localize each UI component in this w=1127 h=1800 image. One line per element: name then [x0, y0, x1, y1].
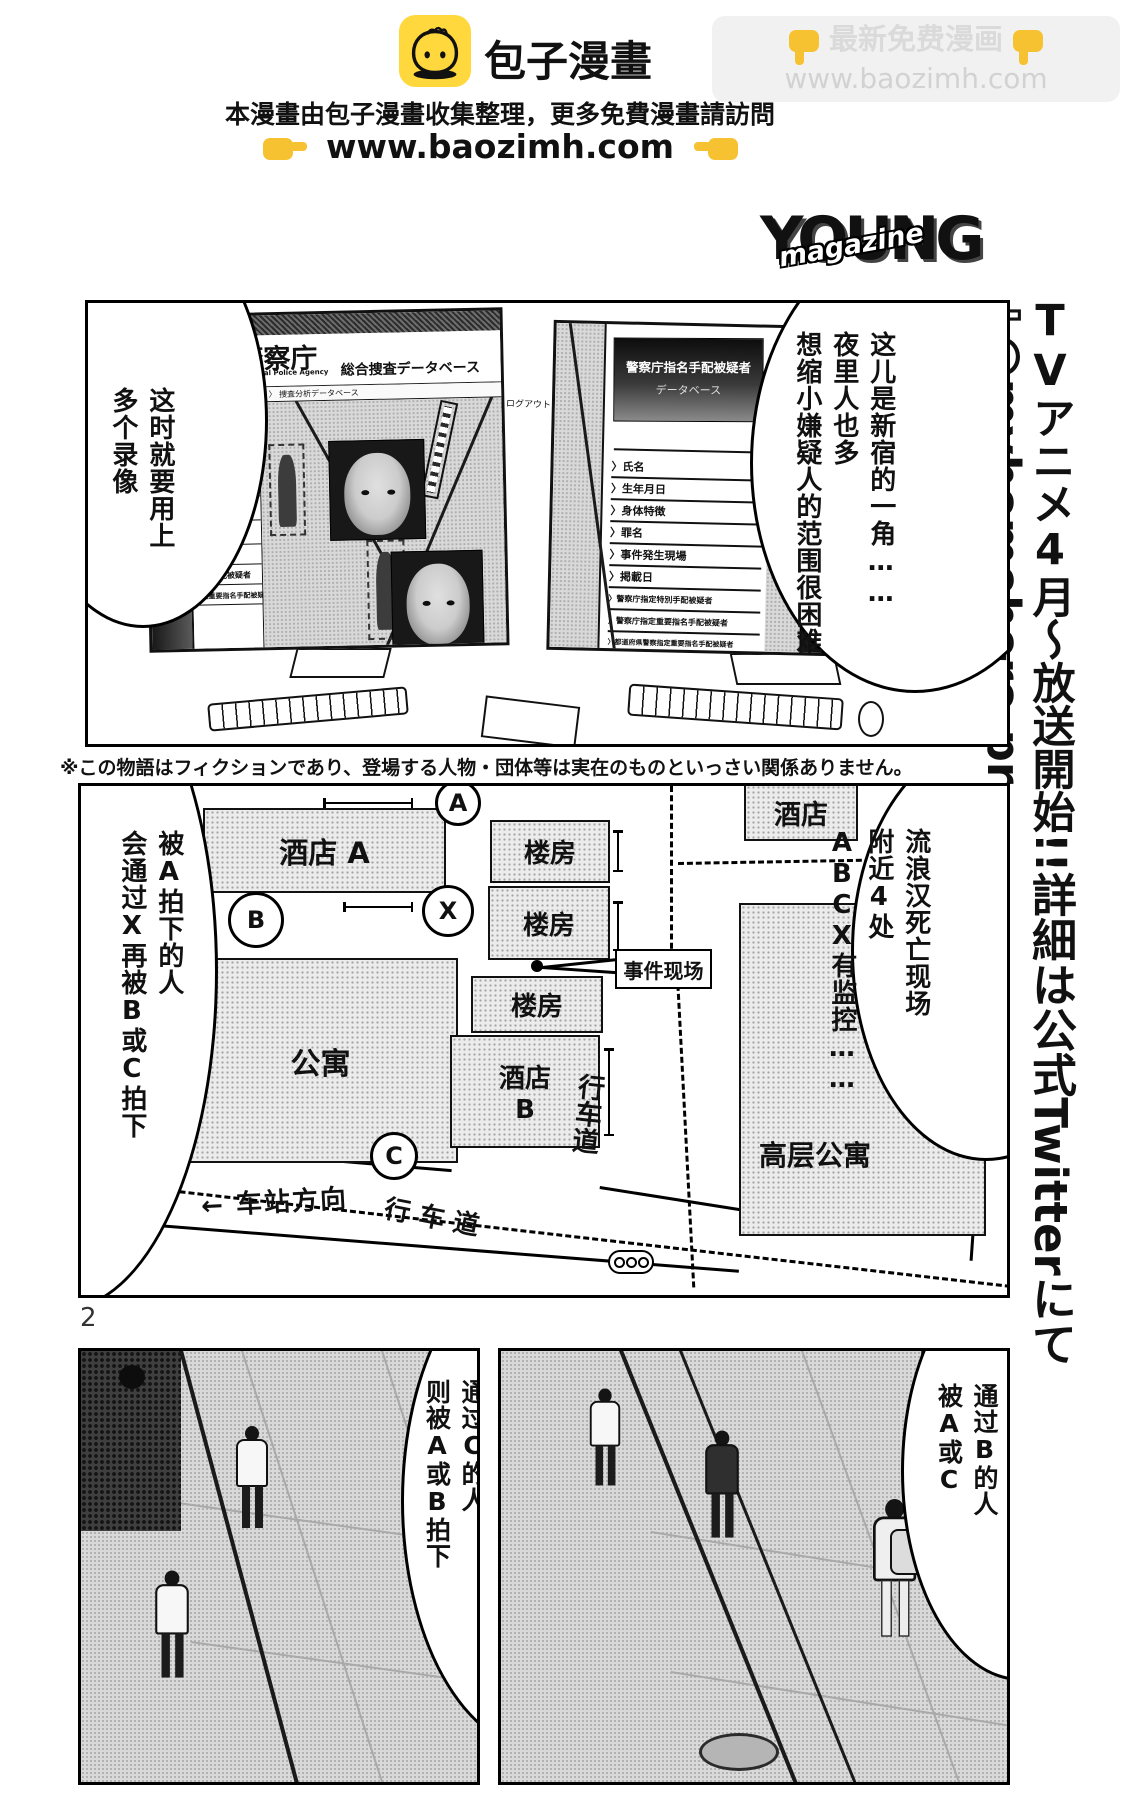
- db-search-field[interactable]: ρ: [614, 428, 760, 453]
- speech-bubble-text: 流浪汉死亡现场 附近4处 ABCX有监控……: [823, 828, 934, 1095]
- measure-tick: [617, 830, 619, 872]
- cctv-still: [259, 397, 509, 653]
- speech-bubble-text: 通过B的人 被A或C: [931, 1383, 1002, 1517]
- speech-bubble-text: 这儿是新宿的一角…… 夜里人也多 想缩小嫌疑人的范围很困难: [788, 331, 899, 655]
- map-building-apartment: 公寓: [183, 958, 458, 1163]
- url-text[interactable]: www.baozimh.com: [326, 127, 674, 166]
- suspect-selection-box: [268, 443, 306, 536]
- panel-street-right: 通过B的人 被A或C: [498, 1348, 1010, 1785]
- manga-page: { "header": { "site_name": "包子漫畫", "noti…: [0, 0, 1127, 1800]
- measure-tick: [323, 802, 413, 804]
- suspect-face-photo[interactable]: [391, 550, 485, 651]
- camera-marker-c: C: [370, 1132, 418, 1180]
- pedestrian-figure: [705, 1430, 739, 1537]
- chevron-icon: 〉: [610, 524, 621, 540]
- panel-screens: 被疑者 警察庁 National Police Agency 総合捜査データベー…: [85, 300, 1010, 747]
- curb-line: [179, 1350, 304, 1785]
- db-menu: 〉氏名 〉生年月日 〉身体特徴 〉罪名 〉事件発生現場 〉掲載日 〉警察庁指定特…: [607, 456, 763, 657]
- papers: [481, 695, 580, 747]
- page-number: 2: [80, 1303, 97, 1333]
- chevron-icon: 〉: [609, 546, 620, 562]
- chevron-icon: 〉: [609, 568, 620, 584]
- pedestrian-figure: [590, 1389, 620, 1486]
- db-sidebar-title2: データベース: [614, 382, 762, 399]
- panel-map: 酒店 A 公寓 楼房 楼房 楼房 酒店B 酒店 高层公寓 A X B C 事件现…: [78, 783, 1010, 1298]
- car-icon: [608, 1250, 654, 1274]
- tile-line: [241, 1350, 391, 1785]
- mouse: [858, 701, 884, 737]
- road-dashed-centerline: [670, 786, 673, 958]
- map-building-block3: 楼房: [471, 976, 603, 1033]
- chevron-icon: 〉: [610, 502, 621, 518]
- banner-tv: TV: [1025, 296, 1075, 396]
- curb-line: [619, 1350, 810, 1785]
- db-sidebar-header: 警察庁指名手配被疑者 データベース: [613, 338, 763, 423]
- banner-nite: にて: [1024, 1276, 1077, 1366]
- speech-bubble-text: 通过C的人 则被A或B拍下: [419, 1379, 480, 1569]
- speech-bubble-text: 被A拍下的人 会通过X再被B或C拍下: [113, 830, 187, 1139]
- camera-marker-x: X: [422, 885, 474, 937]
- banner-detail: 詳細は公式: [1024, 872, 1077, 1097]
- measure-tick: [617, 901, 619, 951]
- pointer-line: [542, 966, 618, 974]
- logout-link[interactable]: ログアウト: [506, 396, 551, 411]
- monitor-stand: [289, 648, 391, 678]
- measure-tick: [343, 906, 413, 908]
- db-sidebar-title1: 警察庁指名手配被疑者: [614, 357, 762, 377]
- finger-down-icon: [789, 30, 819, 52]
- measure-tick: [608, 1048, 610, 1136]
- map-building-block1: 楼房: [490, 820, 610, 883]
- manhole-cover: [699, 1733, 779, 1771]
- banner-twitter: Twitter: [1024, 1097, 1077, 1275]
- station-direction-label: ← 车站方向: [200, 1178, 349, 1223]
- promo-text: 最新免费漫画: [829, 22, 1003, 56]
- map-building-block2: 楼房: [488, 886, 610, 960]
- fiction-disclaimer: ※この物語はフィクションであり、登場する人物・団体等は実在のものといっさい関係あ…: [60, 753, 913, 780]
- young-magazine-logo: YOUNG magazine: [760, 204, 1020, 274]
- banner-broadcast: 月～放送開始!!: [1025, 575, 1075, 872]
- url-line[interactable]: www.baozimh.com: [180, 127, 820, 166]
- chevron-icon: 〉: [611, 480, 622, 496]
- suspect-face-photo[interactable]: [328, 439, 426, 541]
- chevron-icon: 〉: [608, 593, 616, 604]
- banner-four: 4: [1025, 525, 1075, 575]
- promo-url: www.baozimh.com: [712, 62, 1120, 95]
- keyboard: [207, 686, 409, 731]
- prev-screen-sliver: [549, 323, 606, 654]
- road-edge-line: [600, 1186, 758, 1214]
- finger-left-icon: [708, 138, 738, 160]
- baozi-logo-icon: [398, 14, 472, 88]
- collector-notice: 本漫畫由包子漫畫收集整理，更多免費漫畫請訪問: [180, 95, 820, 131]
- panel-street-left: 通过C的人 则被A或B拍下: [78, 1348, 480, 1785]
- road-label-diagonal: 行车道: [381, 1188, 491, 1244]
- finger-right-icon: [263, 138, 293, 160]
- pedestrian-figure: [236, 1426, 268, 1528]
- menu-item[interactable]: 〉都道府県警察指定重要指名手配被疑者: [607, 632, 759, 657]
- site-name: 包子漫畫: [484, 28, 652, 89]
- finger-down-icon: [1013, 30, 1043, 52]
- promo-box[interactable]: 最新免费漫画 www.baozimh.com: [712, 16, 1120, 102]
- keyboard: [627, 684, 844, 731]
- db-title: 総合捜査データベース: [340, 357, 480, 380]
- speech-bubble-text: 这时就要用上 多个录像: [104, 387, 178, 549]
- side-banner: TVアニメ4月～放送開始!!詳細は公式Twitterにて⇩@myhomehero…: [1008, 296, 1074, 1796]
- tile-line: [671, 1671, 1010, 1736]
- map-building-hotel-a: 酒店 A: [203, 808, 446, 893]
- road-dashed-centerline: [675, 958, 695, 1288]
- camera-marker-b: B: [228, 892, 284, 948]
- dark-object: [119, 1365, 145, 1389]
- pedestrian-figure: [155, 1570, 189, 1677]
- monitor-stand: [730, 653, 842, 685]
- camera-marker-a: A: [435, 783, 481, 826]
- banner-anime: アニメ: [1025, 396, 1075, 525]
- chevron-icon: 〉: [611, 458, 622, 474]
- incident-site-label: 事件现场: [615, 949, 712, 989]
